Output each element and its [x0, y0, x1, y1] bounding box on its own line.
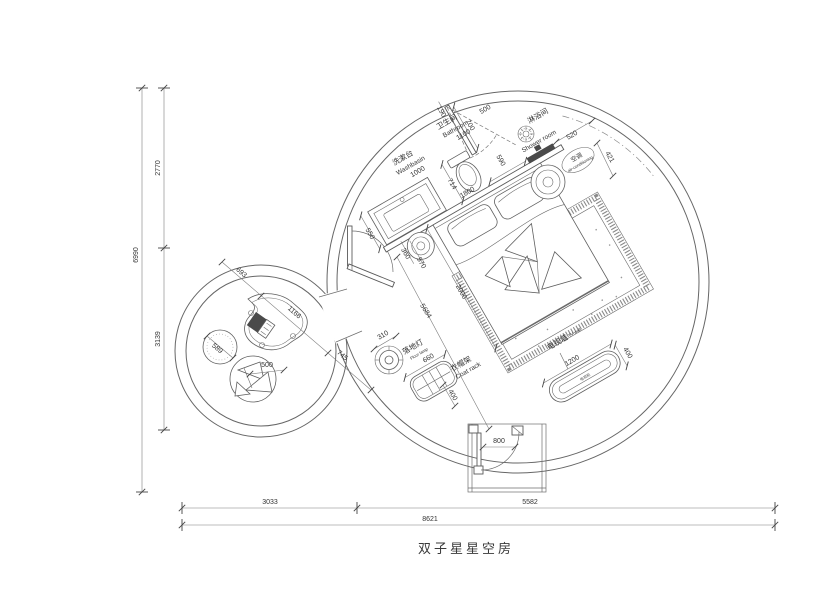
tv-wall-label-en: TV wall: [567, 327, 581, 338]
left-dimension-lines: 6990 2770 3139: [133, 85, 170, 495]
dim-8621: 8621: [422, 516, 438, 523]
bed: [433, 163, 609, 345]
dim-400-tv: 400: [621, 346, 633, 360]
dim-800: 800: [493, 438, 505, 445]
dim-660: 660: [422, 353, 436, 365]
dim-590: 590: [494, 154, 506, 168]
entrance-vestibule: 800: [468, 424, 546, 492]
dim-2770: 2770: [155, 160, 162, 176]
floor-plan-canvas: 550 714 700 190 590 500 1800 2000 360 57…: [0, 0, 837, 592]
dim-500-chair: 500: [261, 362, 273, 369]
corridor-between-rooms: [318, 288, 362, 344]
drawing-title: 双子星星空房: [418, 541, 514, 556]
dim-500-shower: 500: [479, 104, 493, 116]
shower-head-icon: [518, 126, 534, 142]
dim-400-coat: 400: [446, 388, 458, 402]
dim-5582: 5582: [522, 499, 538, 506]
dim-520: 520: [565, 130, 579, 142]
shower-label-zh: 淋浴间: [525, 105, 549, 125]
dim-5684: 5684: [418, 303, 432, 320]
tv-cabinet: 电视柜 1200 400 电视墙 TV wall: [537, 324, 638, 411]
pouf: 589: [203, 330, 237, 364]
bottom-dimension-lines: 3033 5582 8621: [179, 499, 778, 531]
small-circular-room-wall: [175, 265, 347, 437]
dim-421: 421: [603, 150, 615, 164]
dim-3033: 3033: [262, 499, 278, 506]
floor-plan-page: 550 714 700 190 590 500 1800 2000 360 57…: [0, 0, 837, 592]
dim-6990: 6990: [133, 247, 140, 263]
lounge-chair: 500: [230, 356, 287, 402]
floor-lamp: 310 落地灯 Floor lamp: [371, 330, 430, 374]
kidney-table: [245, 294, 308, 350]
tv-wall-label-zh: 电视墙: [545, 332, 570, 352]
round-stool: [531, 165, 565, 199]
air-conditioner-label: 空调 air-conditioning: [558, 142, 599, 178]
dim-310: 310: [376, 330, 390, 342]
dim-3139: 3139: [155, 331, 162, 347]
